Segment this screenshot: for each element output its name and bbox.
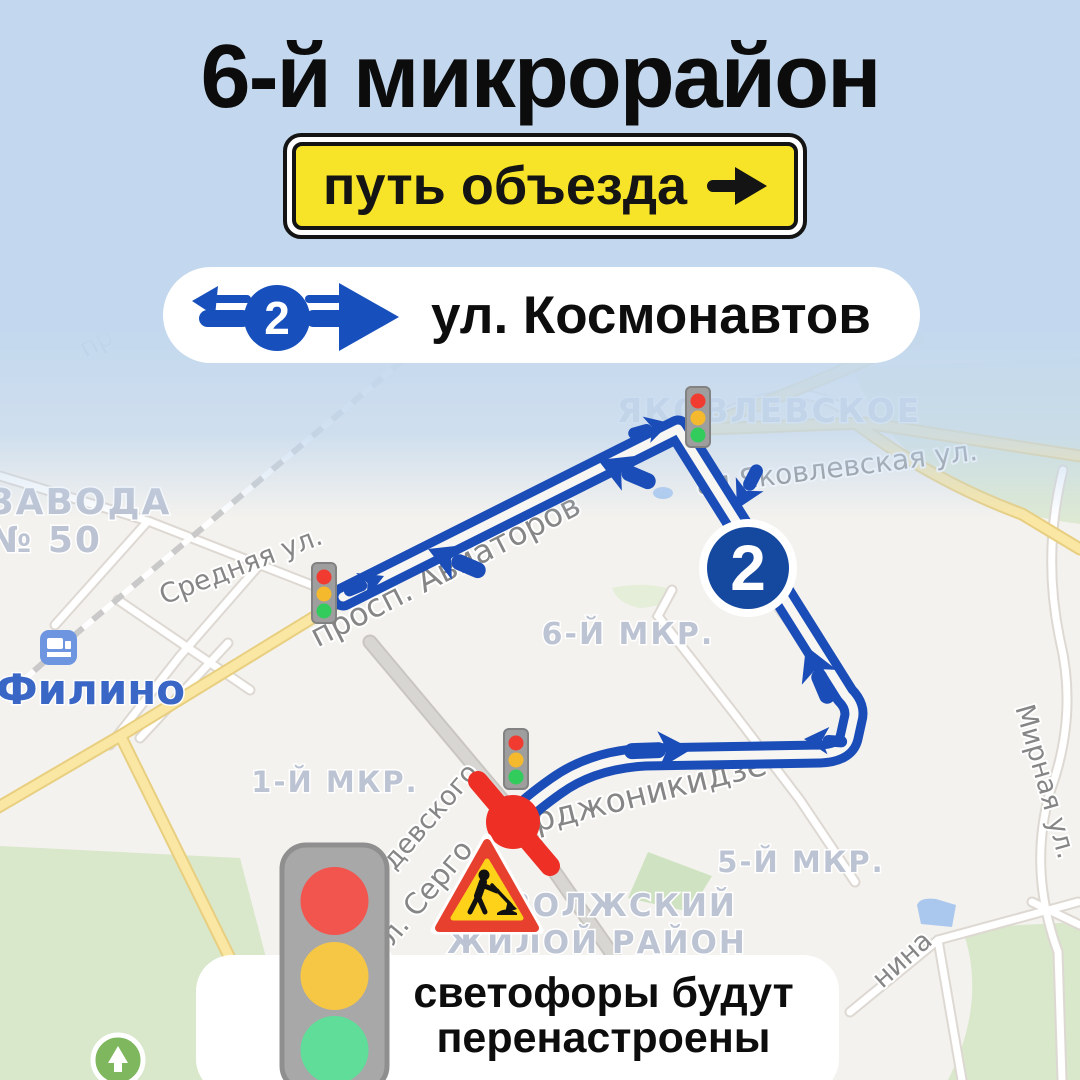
pill-street-name: ул. Космонавтов bbox=[431, 285, 871, 346]
route-badge-number: 2 bbox=[730, 532, 766, 604]
park-icon bbox=[93, 1035, 143, 1080]
traffic-light-icon-yakovlevskoye bbox=[686, 387, 710, 447]
district-label-zavoda-2: № 50 bbox=[0, 520, 102, 561]
station-icon bbox=[40, 630, 77, 665]
detour-sign-label: путь объезда bbox=[323, 155, 687, 217]
district-label-mkr1: 1-Й МКР. bbox=[251, 765, 418, 799]
detour-sign-inner: путь объезда bbox=[292, 142, 798, 230]
right-arrow-icon bbox=[305, 283, 399, 351]
detour-sign: путь объезда bbox=[283, 133, 807, 239]
left-arrow-icon bbox=[192, 286, 251, 327]
route-number-pill: 2 ул. Космонавтов bbox=[163, 267, 920, 363]
right-arrow-icon bbox=[705, 167, 767, 205]
pill-route-number: 2 bbox=[264, 292, 290, 344]
big-traffic-light bbox=[268, 836, 400, 1080]
traffic-light-icon-ordzhonikidze bbox=[504, 729, 528, 789]
traffic-light-icon-srednyaya bbox=[312, 563, 336, 623]
footer-note-line1: светофоры будут bbox=[378, 971, 829, 1016]
district-label-mkr5: 5-Й МКР. bbox=[717, 845, 884, 879]
big-light-red bbox=[301, 867, 369, 935]
infographic-page: ая Яковлевская ул. Средняя ул. просп. Ав… bbox=[0, 0, 1080, 1080]
footer-note-line2: перенастроены bbox=[378, 1016, 829, 1061]
footer-note: светофоры будут перенастроены bbox=[378, 971, 829, 1061]
route-badge: 2 bbox=[699, 519, 797, 617]
place-label-filino: Филино bbox=[0, 665, 185, 714]
district-label-mkr6: 6-Й МКР. bbox=[542, 616, 715, 652]
big-light-yellow bbox=[301, 942, 369, 1010]
page-title: 6-й микрорайон bbox=[0, 26, 1080, 129]
route-direction-arrows: 2 bbox=[179, 267, 429, 363]
